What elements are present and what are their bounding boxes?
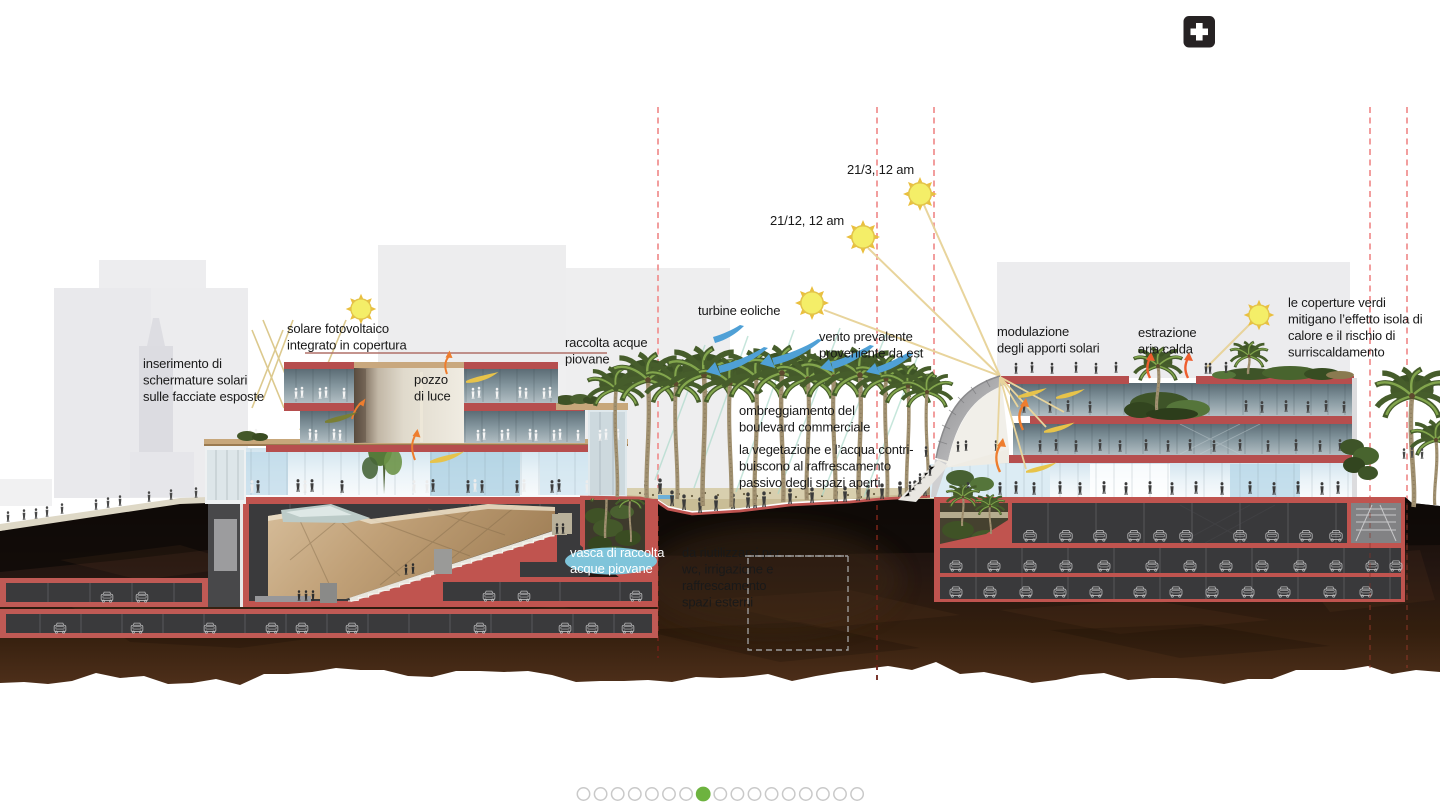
svg-text:le coperture verdi: le coperture verdi [1288, 295, 1386, 310]
svg-text:piovane: piovane [565, 352, 610, 367]
svg-text:spazi esterni: spazi esterni [682, 595, 753, 610]
svg-text:calore e il rischio di: calore e il rischio di [1288, 328, 1396, 343]
svg-text:inserimento di: inserimento di [143, 356, 222, 371]
svg-text:21/3, 12 am: 21/3, 12 am [847, 162, 914, 177]
svg-text:aria calda: aria calda [1138, 342, 1194, 357]
svg-text:ombreggiamento del: ombreggiamento del [739, 403, 855, 418]
svg-text:pozzo: pozzo [414, 372, 448, 387]
svg-text:21/12, 12 am: 21/12, 12 am [770, 213, 844, 228]
svg-text:raffrescamento: raffrescamento [682, 578, 766, 593]
svg-text:la vegetazione e l’acqua contr: la vegetazione e l’acqua contri- [739, 442, 913, 457]
svg-text:di luce: di luce [414, 389, 451, 404]
svg-text:solare fotovoltaico: solare fotovoltaico [287, 321, 389, 336]
svg-text:schermature solari: schermature solari [143, 373, 247, 388]
svg-text:modulazione: modulazione [997, 324, 1069, 339]
svg-text:sulle facciate esposte: sulle facciate esposte [143, 389, 264, 404]
svg-text:turbine eoliche: turbine eoliche [698, 303, 780, 318]
svg-text:surriscaldamento: surriscaldamento [1288, 345, 1385, 360]
svg-text:boulevard commerciale: boulevard commerciale [739, 420, 870, 435]
svg-text:vasca di raccolta: vasca di raccolta [570, 545, 665, 560]
svg-text:integrato in copertura: integrato in copertura [287, 338, 407, 353]
svg-text:wc, irrigazione e: wc, irrigazione e [681, 562, 773, 577]
svg-text:da riutilizzarsi per: da riutilizzarsi per [682, 545, 781, 560]
svg-text:acque piovane: acque piovane [570, 561, 653, 576]
svg-text:buiscono al raffrescamento: buiscono al raffrescamento [739, 459, 891, 474]
svg-text:degli apporti solari: degli apporti solari [997, 341, 1100, 356]
svg-text:vento prevalente: vento prevalente [819, 329, 913, 344]
svg-text:estrazione: estrazione [1138, 325, 1196, 340]
svg-text:proveniente da est: proveniente da est [819, 346, 924, 361]
svg-text:passivo degli spazi aperti: passivo degli spazi aperti [739, 475, 881, 490]
svg-text:raccolta acque: raccolta acque [565, 335, 647, 350]
svg-text:mitigano l’effetto isola di: mitigano l’effetto isola di [1288, 312, 1423, 327]
